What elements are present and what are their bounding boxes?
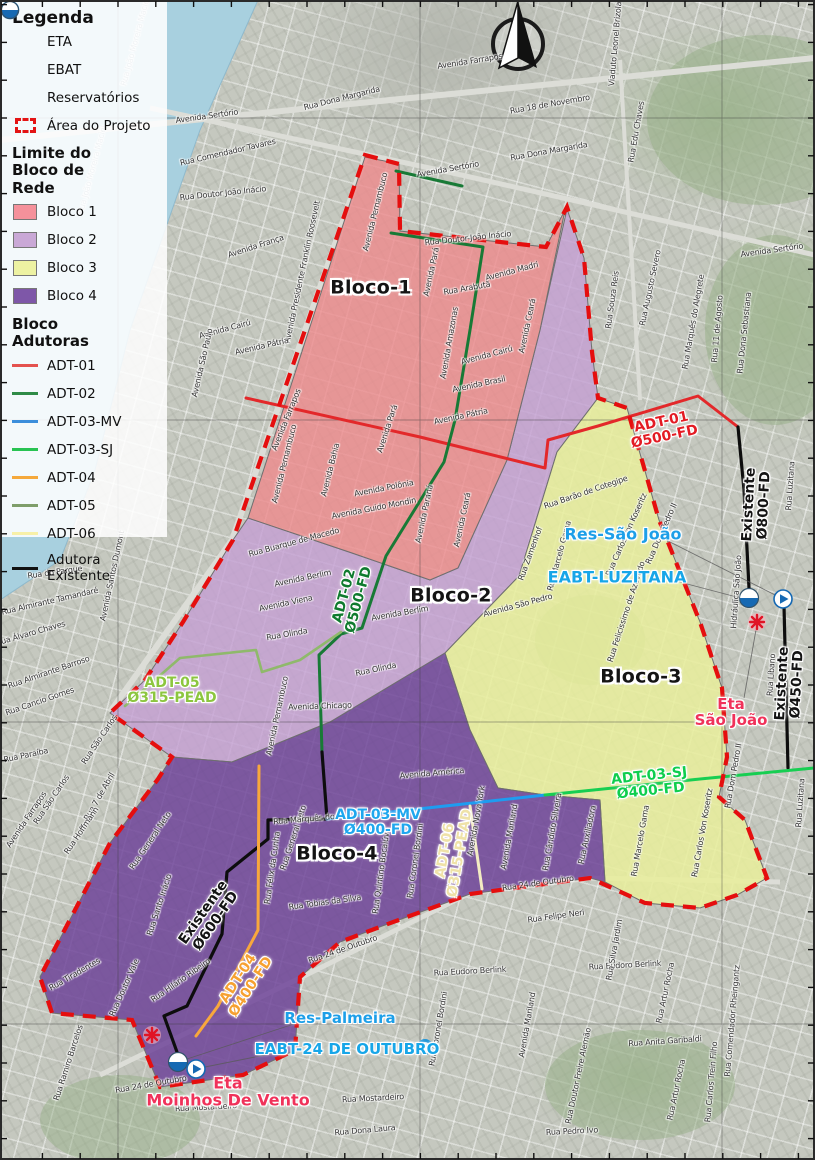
legend-item-bloco3: Bloco 3 — [12, 259, 159, 278]
bloco3-swatch — [13, 260, 37, 276]
legend-item-label: ADT-03-SJ — [47, 442, 113, 458]
poi-circle-icon — [419, 1041, 432, 1054]
bloco2-swatch — [13, 232, 37, 248]
legend-item-bloco4: Bloco 4 — [12, 287, 159, 306]
legend-item-area-projeto: Área do Projeto — [12, 116, 159, 135]
adt05-line-swatch — [12, 504, 38, 507]
adt01-line-swatch — [12, 364, 38, 367]
legend-section-blocks: Limite do Bloco de Rede — [12, 145, 132, 197]
pipeline-existente-800 — [738, 427, 749, 588]
adt06-line-swatch — [12, 532, 38, 535]
map-sheet: Rua João Moreira MacielRua João Moreira … — [0, 0, 815, 1160]
legend-item-label: Reservatórios — [47, 90, 139, 106]
ebat-icon-24-outubro — [187, 1060, 205, 1078]
eta-icon-moinhos — [143, 1026, 161, 1044]
legend-item-label: Bloco 3 — [47, 260, 97, 276]
legend-item-adt01: ADT-01 — [12, 356, 159, 375]
adt03sj-line-swatch — [12, 448, 38, 451]
existente-line-swatch — [12, 567, 38, 570]
reservoir-icon-palmeira — [169, 1053, 188, 1072]
legend-item-label: Bloco 1 — [47, 204, 97, 220]
adt04-line-swatch — [12, 476, 38, 479]
legend-item-label: ADT-01 — [47, 358, 96, 374]
legend-item-adt02: ADT-02 — [12, 384, 159, 403]
legend-item-label: Bloco 2 — [47, 232, 97, 248]
bloco4-swatch — [13, 288, 37, 304]
bloco1-swatch — [13, 204, 37, 220]
legend-item-label: Área do Projeto — [47, 118, 151, 134]
legend-item-bloco1: Bloco 1 — [12, 203, 159, 222]
legend-item-label: ADT-05 — [47, 498, 96, 514]
legend-item-reservatorios: Reservatórios — [12, 88, 159, 107]
adt02-line-swatch — [12, 392, 38, 395]
legend-item-label: ETA — [47, 34, 72, 50]
legend-panel: Legenda ETA EBAT Reservatórios Área do P… — [0, 0, 167, 537]
legend-item-label: ADT-03-MV — [47, 414, 121, 430]
legend-title: Legenda — [12, 8, 159, 28]
legend-item-adt05: ADT-05 — [12, 496, 159, 515]
legend-item-label: ADT-06 — [47, 526, 96, 542]
legend-item-label: Adutora Existente — [47, 552, 159, 584]
eta-icon-sao-joao — [748, 613, 766, 631]
legend-item-adt03sj: ADT-03-SJ — [12, 440, 159, 459]
ebat-icon-luzitana — [774, 590, 792, 608]
legend-item-adt04: ADT-04 — [12, 468, 159, 487]
project-area-icon — [12, 118, 38, 133]
legend-item-label: ADT-04 — [47, 470, 96, 486]
legend-item-label: Bloco 4 — [47, 288, 97, 304]
adt03mv-line-swatch — [12, 420, 38, 423]
legend-item-ebat: EBAT — [12, 60, 159, 79]
legend-item-adt03mv: ADT-03-MV — [12, 412, 159, 431]
legend-item-bloco2: Bloco 2 — [12, 231, 159, 250]
legend-item-adutora-existente: Adutora Existente — [12, 552, 159, 584]
north-arrow — [493, 1, 543, 69]
reservoir-icon-sao-joao — [740, 589, 759, 608]
legend-section-adutoras: Bloco Adutoras — [12, 316, 132, 351]
legend-item-label: ADT-02 — [47, 386, 96, 402]
legend-item-eta: ETA — [12, 32, 159, 51]
legend-item-adt06: ADT-06 — [12, 524, 159, 543]
pipeline-existente-450 — [784, 606, 788, 768]
legend-item-label: EBAT — [47, 62, 81, 78]
